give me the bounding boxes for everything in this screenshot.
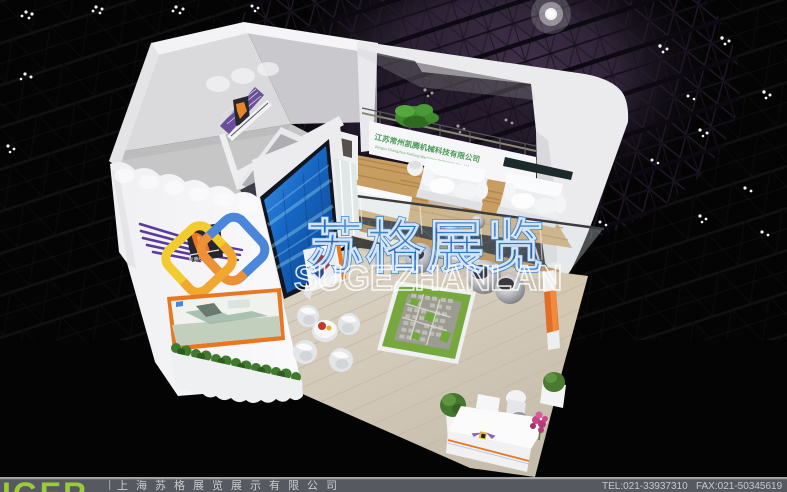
svg-text:IGER: IGER bbox=[2, 476, 88, 492]
svg-text:TEL:021-33937310 FAX:021-503: TEL:021-33937310 FAX:021-50345619 bbox=[602, 481, 783, 492]
svg-text:SUGEZHANLAN: SUGEZHANLAN bbox=[294, 259, 562, 298]
svg-text:上海苏格展览展示有限公司: 上海苏格展览展示有限公司 bbox=[117, 478, 345, 492]
